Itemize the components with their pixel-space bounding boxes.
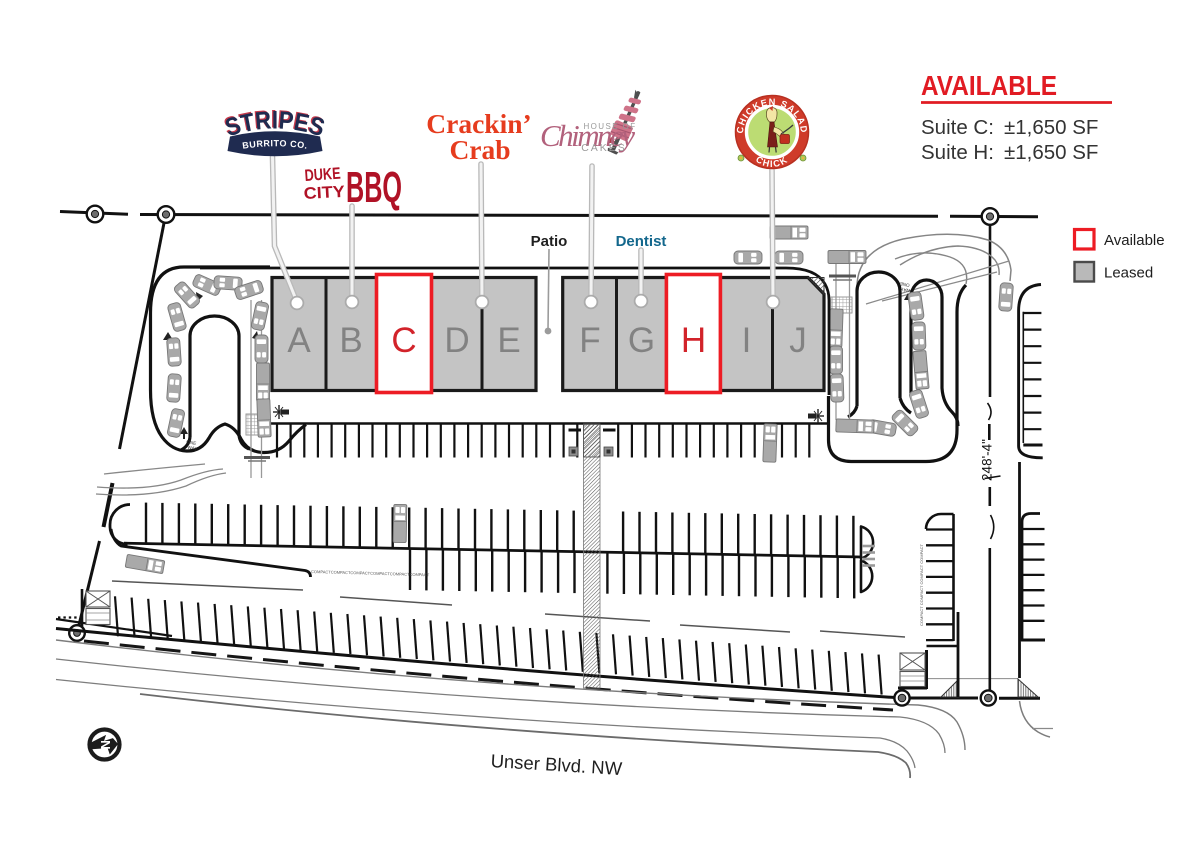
svg-text:COMPACT COMPACT COMPACT COMPAC: COMPACT COMPACT COMPACT COMPACT [919,543,924,625]
svg-text:Crab: Crab [449,134,510,165]
svg-text:HOUSE OF: HOUSE OF [584,122,637,131]
svg-text:Dentist: Dentist [616,233,667,250]
svg-text:N: N [98,740,113,749]
svg-text:E: E [497,321,520,360]
svg-text:±1,650 SF: ±1,650 SF [1004,141,1098,164]
svg-text:Suite C:: Suite C: [921,116,994,139]
svg-text:BBQ: BBQ [346,163,402,212]
svg-text:±1,650 SF: ±1,650 SF [1004,116,1098,139]
svg-text:Patio: Patio [531,233,568,250]
svg-text:AVAILABLE: AVAILABLE [921,70,1057,101]
svg-text:CAKES: CAKES [581,142,627,154]
svg-text:Available: Available [1104,232,1165,249]
svg-text:F: F [579,321,600,360]
svg-text:I: I [742,321,752,360]
svg-text:A: A [287,321,311,360]
svg-text:Suite H:: Suite H: [921,141,994,164]
svg-text:J: J [789,321,807,360]
svg-text:G: G [628,321,655,360]
svg-text:B: B [339,321,362,360]
svg-text:C: C [391,321,416,360]
svg-text:248'-4": 248'-4" [980,439,995,481]
svg-text:H: H [681,321,706,360]
svg-text:Leased: Leased [1104,265,1153,282]
svg-text:DUKE: DUKE [304,165,341,185]
svg-text:CITY: CITY [303,183,345,203]
svg-text:D: D [444,321,469,360]
